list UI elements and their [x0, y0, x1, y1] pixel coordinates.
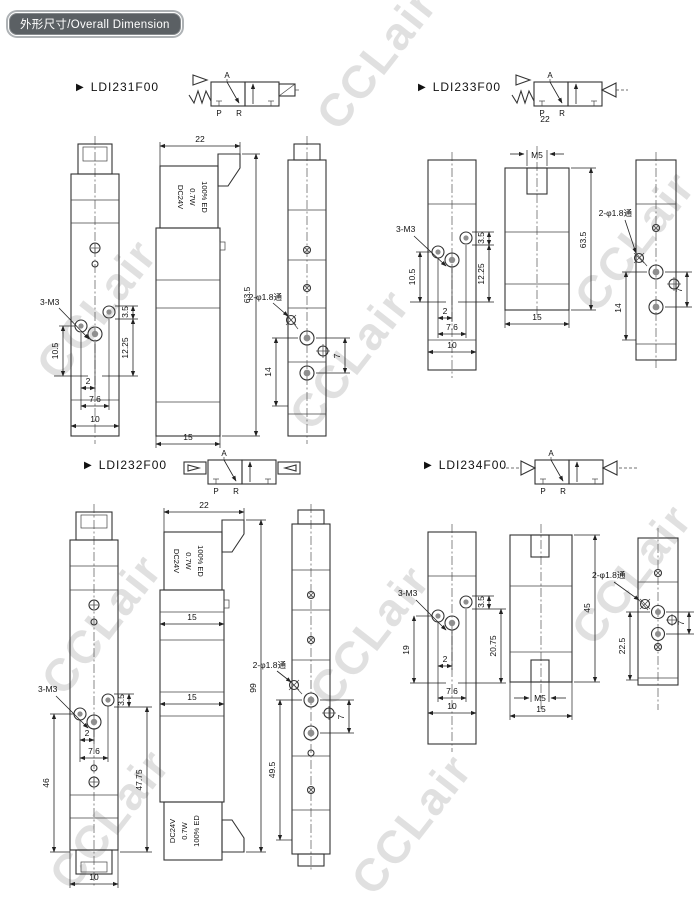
dim-label: 7	[674, 287, 684, 292]
dim-label: 45	[582, 603, 592, 613]
dim-label: 10	[447, 340, 457, 350]
dim-label: 15	[183, 432, 193, 442]
air-pilot-icon	[603, 461, 637, 475]
port-r-label: R	[560, 487, 566, 496]
dim-label: 7	[332, 353, 342, 358]
dim-label: 3.5	[120, 306, 130, 318]
model-name: LDI232F00	[99, 458, 167, 472]
model-name: LDI231F00	[91, 80, 159, 94]
back-view: 2-φ1.8通 14 7	[599, 152, 692, 368]
ldi231f00-drawing: 3-M3 3.5 12.25 10.5 2 7.6 10 22 DC24V 0.…	[32, 130, 362, 450]
din-connector	[218, 154, 240, 186]
dim-label: 10.5	[407, 268, 417, 285]
manual-override-icon	[193, 75, 207, 85]
back-view: 2-φ1.8通 22.5 7	[592, 528, 694, 710]
bullet-icon: ▶	[424, 460, 432, 471]
dim-label: 3.5	[476, 232, 486, 244]
dim-label: 7.6	[446, 686, 458, 696]
dim-label: 2	[86, 376, 91, 386]
ldi232f00-drawing: 3-M3 3.5 47.75 46 2 7.6 10 22 DC24V 0.7W…	[30, 500, 362, 895]
dim-label: 49.5	[267, 761, 277, 778]
dim-label: 7.6	[89, 394, 101, 404]
port-a-label: A	[548, 449, 554, 458]
dim-label: 10.5	[50, 342, 60, 359]
front-view: 3-M3 3.5 12.25 10.5 2 7.6 10	[396, 152, 494, 378]
coil-spec: 0.7W	[188, 188, 197, 206]
port-p-label: P	[216, 109, 221, 118]
spring-icon	[189, 91, 211, 103]
din-connector	[222, 520, 244, 552]
dim-label: 20.75	[488, 635, 498, 657]
hole-callout: 2-φ1.8通	[249, 292, 283, 302]
coil-spec: 100% ED	[196, 545, 205, 577]
bullet-icon: ▶	[76, 82, 84, 93]
dim-label: 22	[540, 114, 550, 124]
thread-label: M5	[534, 693, 546, 703]
front-view: 3-M3 3.5 20.75 19 2 7.6 10	[398, 524, 506, 752]
port-p-label: P	[213, 487, 218, 496]
dim-label: 12.25	[120, 337, 130, 359]
dim-label: 15	[187, 692, 197, 702]
port-a-label: A	[224, 71, 230, 80]
front-view: 3-M3 3.5 12.25 10.5 2 7.6 10	[40, 136, 138, 444]
solenoid-icon	[279, 84, 299, 96]
dim-label: 14	[263, 367, 273, 377]
hole-callout: 2-φ1.8通	[592, 570, 626, 580]
coil-spec: 100% ED	[192, 815, 201, 847]
air-pilot-icon	[501, 461, 535, 475]
dim-label: 10	[89, 872, 99, 882]
thread-label: 3-M3	[38, 684, 58, 694]
dim-label: 7.6	[446, 322, 458, 332]
valve-symbol-ldi232f00: A P R	[180, 448, 304, 498]
valve-symbol-ldi231f00: A P R	[183, 70, 299, 120]
dim-label: 15	[532, 312, 542, 322]
back-view: 2-φ1.8通 49.5 7	[253, 504, 354, 872]
model-label-ldi231f00: ▶ LDI231F00	[76, 80, 159, 94]
dim-label: 7	[676, 620, 686, 625]
dim-label: 15	[536, 704, 546, 714]
hole-callout: 2-φ1.8通	[599, 208, 633, 218]
coil-spec: DC24V	[168, 819, 177, 843]
dim-label: 10	[447, 701, 457, 711]
model-label-ldi233f00: ▶ LDI233F00	[418, 80, 501, 94]
thread-label: 3-M3	[396, 224, 416, 234]
side-view: 45 M5 15	[510, 524, 600, 720]
model-label-ldi232f00: ▶ LDI232F00	[84, 458, 167, 472]
dim-label: 99	[248, 683, 258, 693]
side-view: 22 DC24V 0.7W 100% ED 63.5 15	[156, 134, 260, 448]
front-view: 3-M3 3.5 47.75 46 2 7.6 10	[38, 504, 152, 888]
coil-spec: DC24V	[172, 549, 181, 573]
side-view: 22 M5 63.5 15	[505, 114, 596, 328]
model-name: LDI233F00	[433, 80, 501, 94]
dim-label: 46	[41, 778, 51, 788]
solenoid-icon	[184, 462, 206, 474]
thread-label: 3-M3	[398, 588, 418, 598]
thread-label: 3-M3	[40, 297, 60, 307]
m5-port	[531, 535, 549, 557]
dim-label: 63.5	[578, 231, 588, 248]
dim-label: 12.25	[476, 263, 486, 285]
dim-label: 14	[613, 303, 623, 313]
dim-label: 2	[443, 654, 448, 664]
dim-label: 10	[90, 414, 100, 424]
coil-spec: 100% ED	[200, 181, 209, 213]
solenoid-icon	[278, 462, 300, 474]
port-a-label: A	[221, 449, 227, 458]
back-view: 2-φ1.8通 14 7	[249, 136, 350, 444]
bullet-icon: ▶	[84, 460, 92, 471]
dim-label: 22	[195, 134, 205, 144]
dim-label: 7.6	[88, 746, 100, 756]
page-title-text: 外形尺寸/Overall Dimension	[20, 19, 170, 31]
port-p-label: P	[540, 487, 545, 496]
port-r-label: R	[236, 109, 242, 118]
port-r-label: R	[233, 487, 239, 496]
valve-symbol-ldi234f00: A P R	[495, 448, 645, 498]
din-connector	[222, 820, 244, 852]
coil-spec: 0.7W	[180, 821, 189, 839]
spring-icon	[512, 91, 534, 103]
dim-label: 2	[85, 728, 90, 738]
coil-spec: 0.7W	[184, 552, 193, 570]
ldi233f00-drawing: 3-M3 3.5 12.25 10.5 2 7.6 10 22 M5 63.5 …	[388, 112, 700, 382]
bullet-icon: ▶	[418, 82, 426, 93]
dim-label: 2	[443, 306, 448, 316]
dim-label: 3.5	[476, 596, 486, 608]
side-view: 22 DC24V 0.7W 100% ED 15 15 DC24V 0.7W 1…	[160, 500, 266, 860]
m5-port	[531, 660, 549, 682]
port-a-label: A	[547, 71, 553, 80]
ldi234f00-drawing: 3-M3 3.5 20.75 19 2 7.6 10 45 M5 15	[388, 520, 700, 765]
thread-label: M5	[531, 150, 543, 160]
dim-label: 15	[187, 612, 197, 622]
dim-label: 19	[401, 645, 411, 655]
dim-label: 22.5	[617, 637, 627, 654]
dim-label: 7	[336, 714, 346, 719]
coil-spec: DC24V	[176, 185, 185, 209]
manual-override-icon	[516, 75, 530, 85]
hole-callout: 2-φ1.8通	[253, 660, 287, 670]
page-title: 外形尺寸/Overall Dimension	[8, 12, 182, 36]
dim-label: 3.5	[116, 694, 126, 706]
air-pilot-icon	[602, 83, 628, 97]
dim-label: 22	[199, 500, 209, 510]
dim-label: 47.75	[134, 769, 144, 791]
